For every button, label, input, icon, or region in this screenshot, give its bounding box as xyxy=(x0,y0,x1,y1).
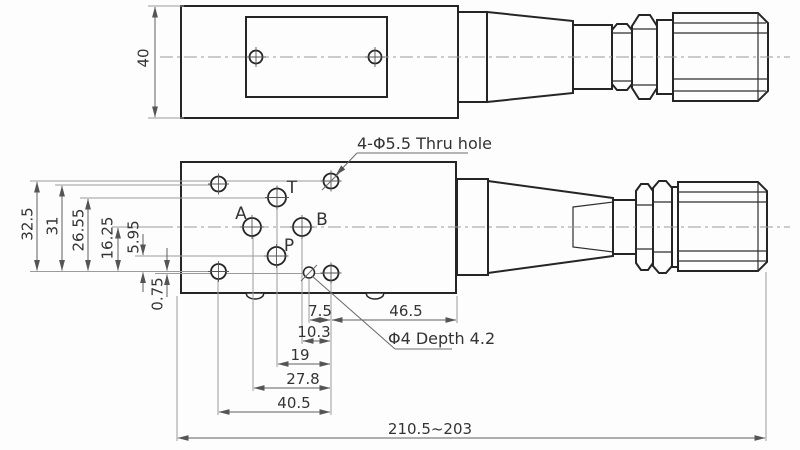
port-label-p: P xyxy=(284,236,294,256)
dim-label-27-8: 27.8 xyxy=(286,370,319,388)
locating-pin xyxy=(246,293,264,299)
top-view: 40 xyxy=(134,6,790,118)
port-label-a: A xyxy=(235,204,247,224)
dim-label-5-95: 5.95 xyxy=(124,220,142,253)
bottom-dimension-stack: 7.5 46.5 10.3 19 27.8 40.5 210.5~203 xyxy=(178,302,765,438)
dim-label-40: 40 xyxy=(134,48,152,67)
dim-label-7-5: 7.5 xyxy=(308,302,332,320)
dim-label-overall: 210.5~203 xyxy=(388,420,472,438)
dim-label-32-5: 32.5 xyxy=(18,207,36,240)
drawing-canvas: 40 xyxy=(0,0,800,450)
valve-drawing: 40 xyxy=(0,0,800,450)
depth-hole-note: Φ4 Depth 4.2 xyxy=(388,329,495,348)
thru-hole-note: 4-Φ5.5 Thru hole xyxy=(357,134,492,153)
port-label-b: B xyxy=(316,210,328,230)
dim-label-31: 31 xyxy=(43,216,61,235)
dim-label-26-55: 26.55 xyxy=(69,209,87,252)
dim-label-0-75: 0.75 xyxy=(148,277,166,310)
locating-pin xyxy=(366,293,384,299)
dim-label-19: 19 xyxy=(290,346,309,364)
dim-40: 40 xyxy=(134,6,184,118)
dim-label-40-5: 40.5 xyxy=(277,394,310,412)
dim-label-46-5: 46.5 xyxy=(389,302,422,320)
dim-label-16-25: 16.25 xyxy=(98,217,116,260)
port-label-t: T xyxy=(286,178,298,198)
dim-label-10-3: 10.3 xyxy=(297,323,330,341)
left-dimension-stack: 32.5 31 26.55 16.25 5.95 0.75 xyxy=(18,182,167,311)
